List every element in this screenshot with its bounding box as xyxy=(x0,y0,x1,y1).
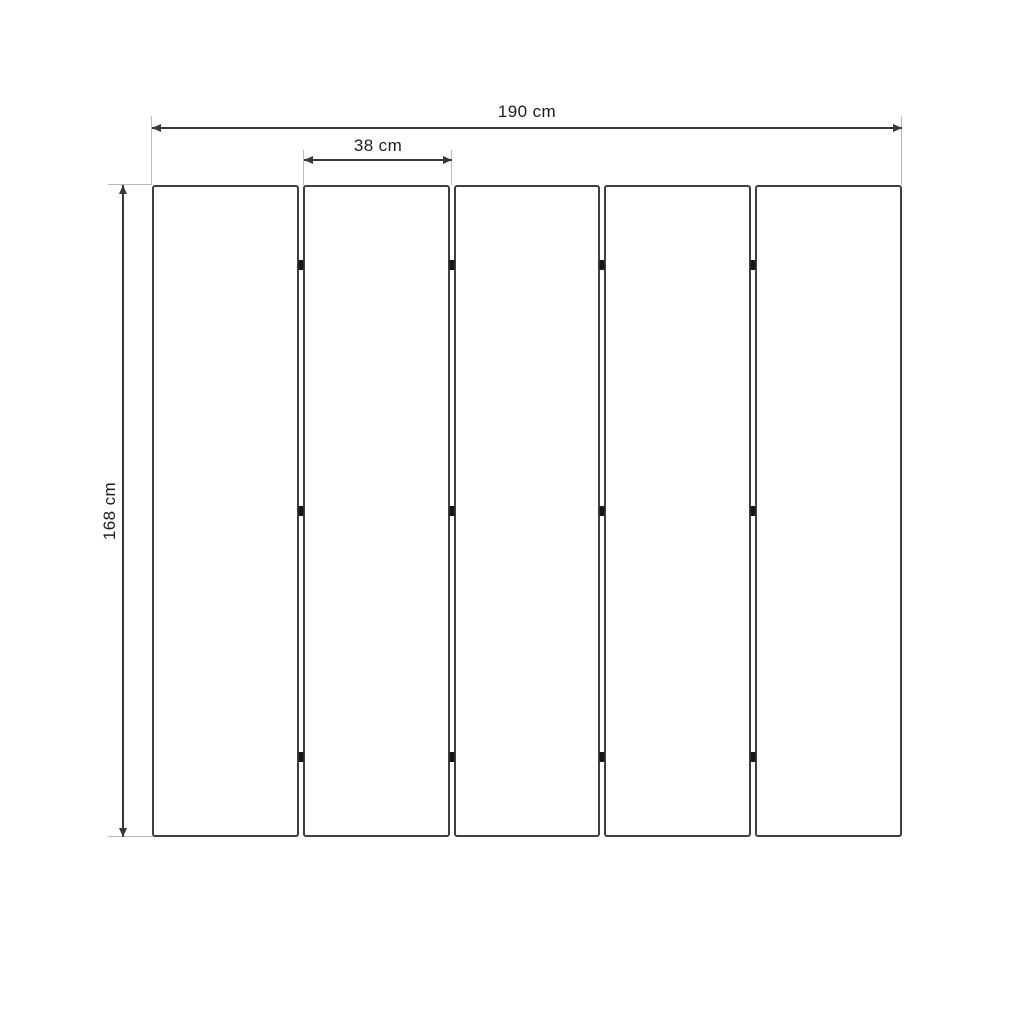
hinge-gap1-row1 xyxy=(298,260,303,270)
hinge-gap3-row2 xyxy=(600,506,605,516)
height-label: 168 cm xyxy=(100,482,120,540)
hinge-gap1-row3 xyxy=(298,752,303,762)
hinge-gap4-row2 xyxy=(751,506,756,516)
hinge-gap3-row1 xyxy=(600,260,605,270)
extension-line-height-bottom xyxy=(108,836,156,837)
panel-2 xyxy=(303,185,450,837)
hinge-gap4-row3 xyxy=(751,752,756,762)
panels-row xyxy=(152,185,902,837)
hinge-gap2-row3 xyxy=(449,752,454,762)
total-width-dimension-line xyxy=(152,127,902,129)
arrowhead-down-icon xyxy=(119,828,127,837)
hinge-gap2-row2 xyxy=(449,506,454,516)
panel-4 xyxy=(604,185,751,837)
panel-5 xyxy=(755,185,902,837)
extension-line-height-top xyxy=(108,184,152,185)
arrowhead-left-icon xyxy=(304,156,313,164)
total-width-label: 190 cm xyxy=(152,102,902,122)
panel-1 xyxy=(152,185,299,837)
hinge-gap3-row3 xyxy=(600,752,605,762)
arrowhead-right-icon xyxy=(443,156,452,164)
panel-3 xyxy=(454,185,601,837)
panel-width-dimension-line xyxy=(304,159,452,161)
arrowhead-right-icon xyxy=(893,124,902,132)
dimension-diagram: 190 cm 38 cm 168 cm xyxy=(0,0,1024,1024)
arrowhead-left-icon xyxy=(152,124,161,132)
hinge-gap4-row1 xyxy=(751,260,756,270)
panel-width-label: 38 cm xyxy=(304,136,452,156)
height-dimension-line xyxy=(122,185,124,837)
arrowhead-up-icon xyxy=(119,185,127,194)
hinge-gap1-row2 xyxy=(298,506,303,516)
hinge-gap2-row1 xyxy=(449,260,454,270)
